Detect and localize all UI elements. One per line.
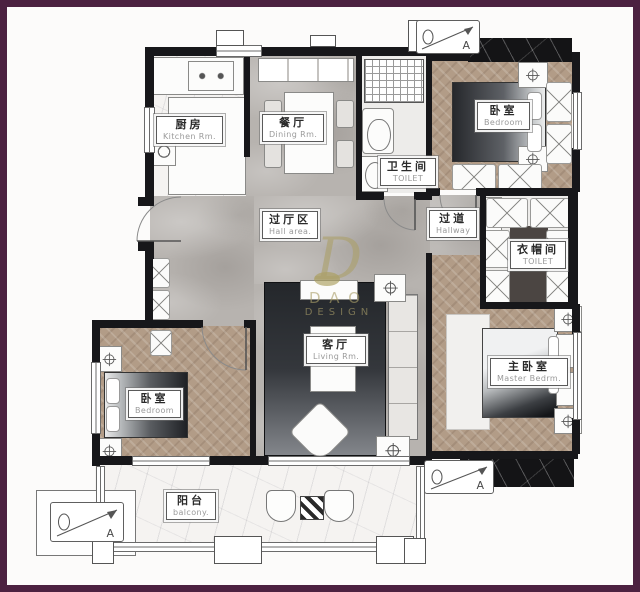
- room-label-dining: 餐厅 Dining Rm.: [262, 114, 324, 142]
- wall-segment: [572, 418, 580, 454]
- room-label-zh: 厨房: [163, 119, 216, 132]
- window: [268, 456, 410, 466]
- wall-segment: [356, 192, 384, 200]
- room-label-en: Bedroom: [484, 118, 523, 127]
- section-marker-letter: A: [106, 527, 114, 540]
- room-label-en: Kitchen Rm.: [163, 132, 216, 141]
- wall-segment: [430, 188, 440, 196]
- dining-chair: [264, 140, 282, 168]
- bathroom-door-icon: [384, 199, 416, 231]
- balcony-chair: [266, 490, 296, 522]
- wall-segment: [480, 302, 576, 309]
- room-label-zh: 主卧室: [497, 361, 561, 374]
- bed-pillow: [106, 406, 120, 432]
- room-label-zh: 过道: [436, 213, 470, 226]
- wall-segment: [250, 326, 256, 460]
- wardrobe-unit: [484, 270, 510, 304]
- kitchen-sink: [188, 61, 234, 91]
- wall-segment: [572, 52, 580, 94]
- room-label-en: Hallway: [436, 226, 470, 235]
- bed-pillow: [106, 378, 120, 404]
- wall-segment: [208, 456, 256, 465]
- room-label-zh: 过厅区: [269, 214, 311, 227]
- room-label-bedroom-left: 卧室 Bedroom: [128, 390, 181, 418]
- section-marker-bottom-right: A: [424, 460, 494, 494]
- wall-segment: [145, 151, 154, 201]
- dining-sideboard: [258, 58, 354, 82]
- room-label-en: Bedroom: [135, 406, 174, 415]
- section-marker-letter: A: [462, 39, 470, 52]
- wall-segment: [430, 53, 470, 61]
- room-label-zh: 客厅: [313, 339, 359, 352]
- bench-cushion: [452, 164, 496, 190]
- balcony-pilaster: [214, 536, 262, 564]
- nightstand-icon: [518, 62, 548, 88]
- wall-segment: [572, 148, 580, 192]
- room-label-en: Living Rm.: [313, 352, 359, 361]
- wall-segment: [92, 456, 134, 465]
- wall-segment: [430, 451, 578, 459]
- bedroom-left-door-icon: [202, 327, 248, 371]
- wall-segment: [480, 195, 486, 305]
- room-label-zh: 餐厅: [269, 117, 317, 130]
- wall-segment: [95, 320, 203, 328]
- wall-segment: [568, 190, 578, 306]
- window: [216, 45, 262, 57]
- room-label-cloakroom: 衣帽间 TOILET: [510, 241, 566, 269]
- wall-segment: [260, 47, 358, 56]
- room-label-hallway: 过道 Hallway: [429, 210, 477, 238]
- black-marble-strip-top: [468, 38, 572, 62]
- wardrobe-unit: [546, 82, 572, 122]
- room-label-master: 主卧室 Master Bedrm.: [490, 358, 568, 386]
- room-label-hall: 过厅区 Hall area.: [262, 211, 318, 239]
- kitchen-island: [168, 97, 246, 195]
- section-marker-bottom-left: A: [50, 502, 124, 542]
- wardrobe-unit: [546, 270, 570, 304]
- room-label-balcony: 阳台 balcony.: [166, 492, 216, 520]
- wall-segment: [150, 47, 218, 56]
- dining-chair: [336, 100, 354, 128]
- room-label-zh: 衣帽间: [517, 244, 559, 257]
- balcony-table: [300, 496, 324, 520]
- room-label-en: Hall area.: [269, 227, 311, 236]
- plant-icon: [314, 272, 340, 286]
- wall-segment: [145, 47, 154, 109]
- room-label-en: TOILET: [387, 174, 429, 183]
- balcony-chair: [324, 490, 354, 522]
- wall-segment: [356, 55, 362, 195]
- room-label-en: TOILET: [517, 257, 559, 266]
- room-label-en: Dining Rm.: [269, 130, 317, 139]
- room-label-zh: 卧室: [484, 105, 523, 118]
- room-label-kitchen: 厨房 Kitchen Rm.: [156, 116, 223, 144]
- window: [573, 332, 582, 420]
- wall-bump: [216, 30, 244, 46]
- room-label-bathroom: 卫生间 TOILET: [380, 158, 436, 186]
- room-label-living: 客厅 Living Rm.: [306, 336, 366, 364]
- wardrobe-unit: [530, 198, 570, 228]
- bench-cushion: [498, 164, 542, 190]
- entry-bench-cushion: [150, 330, 172, 356]
- wardrobe-unit: [546, 124, 572, 164]
- dining-chair: [336, 140, 354, 168]
- room-label-zh: 卫生间: [387, 161, 429, 174]
- wall-bump: [310, 35, 336, 47]
- section-marker-letter: A: [476, 479, 484, 492]
- wall-segment: [476, 188, 576, 196]
- side-table-icon: [374, 274, 406, 302]
- balcony-pilaster: [404, 538, 426, 564]
- room-label-zh: 卧室: [135, 393, 174, 406]
- section-marker-top: A: [416, 20, 480, 54]
- window: [91, 362, 101, 434]
- wardrobe-unit: [484, 230, 510, 268]
- wall-segment: [145, 257, 153, 323]
- room-label-en: balcony.: [173, 508, 209, 517]
- balcony-floor: [95, 462, 425, 544]
- room-label-bedroom-top: 卧室 Bedroom: [477, 102, 530, 130]
- entry-door-icon: [134, 196, 186, 246]
- wall-segment: [244, 55, 250, 157]
- window: [144, 107, 155, 153]
- wardrobe-unit: [486, 198, 528, 228]
- room-label-zh: 阳台: [173, 495, 209, 508]
- sofa: [388, 294, 418, 440]
- floor-plan: 厨房 Kitchen Rm. 餐厅 Dining Rm. 卫生间 TOILET …: [0, 0, 640, 592]
- wall-segment: [426, 253, 432, 459]
- room-label-en: Master Bedrm.: [497, 374, 561, 383]
- bathtub: [364, 59, 424, 103]
- window: [573, 92, 582, 150]
- toilet: [362, 108, 394, 154]
- window: [132, 456, 210, 466]
